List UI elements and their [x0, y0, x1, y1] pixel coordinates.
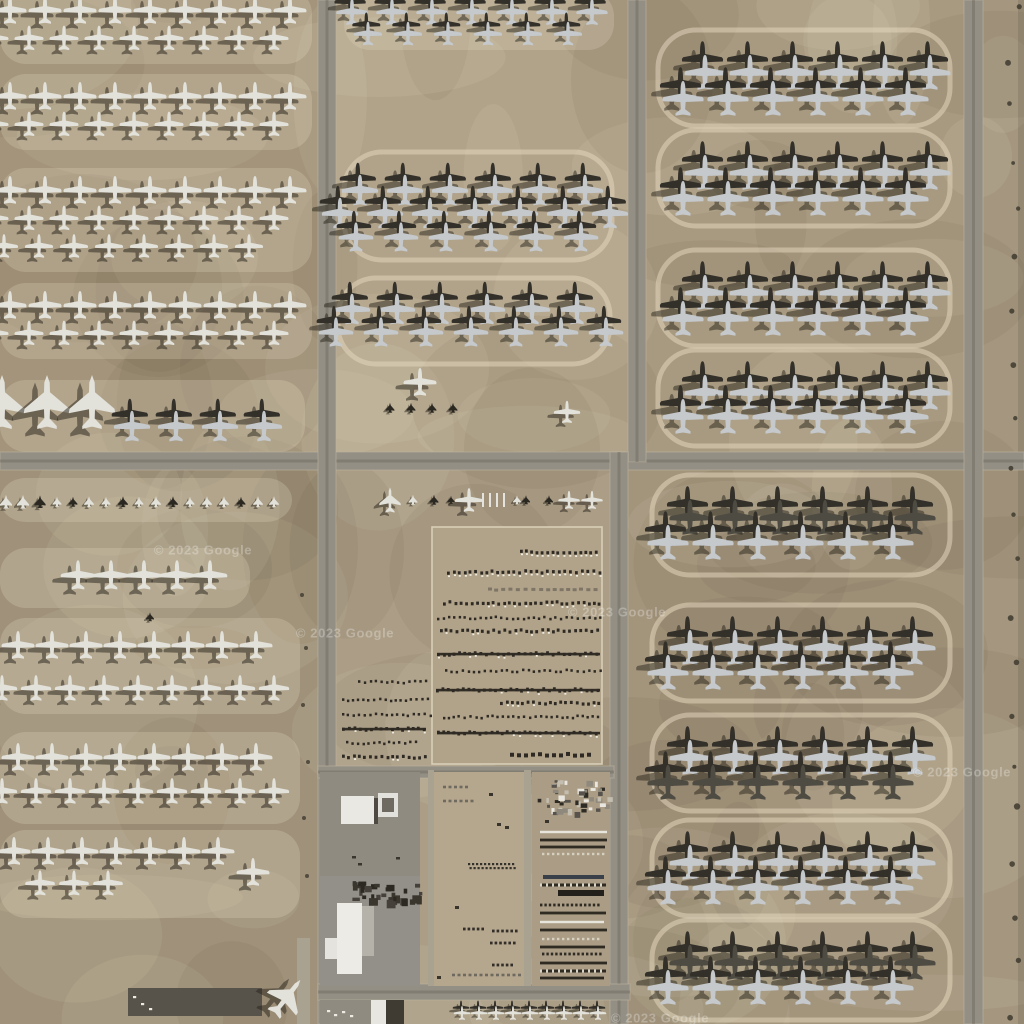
building — [337, 903, 362, 974]
storage-compound — [432, 527, 602, 764]
parked-aircraft — [503, 493, 505, 507]
paved-ramp — [128, 988, 262, 1016]
building — [382, 798, 394, 812]
building — [325, 938, 337, 959]
building — [362, 906, 374, 956]
parked-aircraft — [482, 493, 484, 507]
aerial-imagery — [0, 0, 1024, 1024]
satellite-map-viewport[interactable]: © 2023 Google © 2023 Google © 2023 Googl… — [0, 0, 1024, 1024]
building — [371, 1000, 386, 1024]
building — [341, 796, 374, 824]
building — [374, 798, 378, 824]
parked-aircraft — [489, 493, 491, 507]
parked-aircraft — [496, 493, 498, 507]
